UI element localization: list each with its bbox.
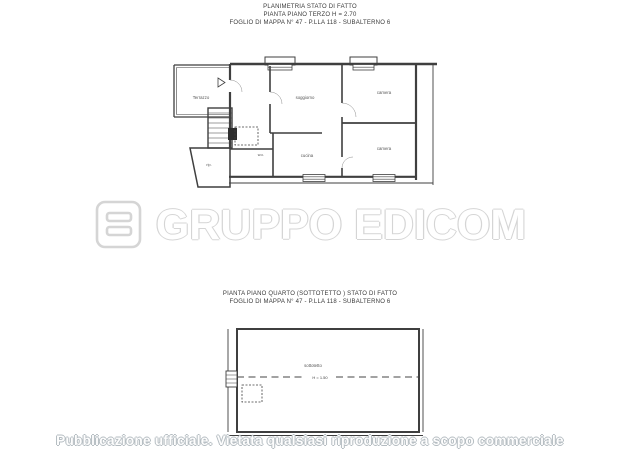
floor-plan-quarto: sottotetto H = 1.50 — [220, 318, 440, 443]
room-label-camera-bottom: camera — [377, 146, 392, 151]
plan-terzo-title-line3: FOGLIO DI MAPPA N° 47 - P.LLA 118 - SUBA… — [0, 20, 620, 28]
plan-terzo-title-block: PLANIMETRIA STATO DI FATTO PIANTA PIANO … — [0, 4, 620, 27]
plan-quarto-title-line1: PIANTA PIANO QUARTO (SOTTOTETTO ) STATO … — [0, 291, 620, 299]
plan-terzo-title-line1: PLANIMETRIA STATO DI FATTO — [0, 4, 620, 12]
room-label-soggiorno: soggiorno — [296, 95, 315, 100]
north-arrow-icon — [218, 78, 225, 87]
room-label-rip: rip. — [206, 163, 211, 167]
floor-plan-terzo: Terrazzo soggiorno camera camera cucina … — [165, 52, 445, 192]
room-label-sottotetto: sottotetto — [304, 363, 322, 368]
room-label-terrazzo: Terrazzo — [193, 95, 210, 100]
cadastral-document-page: PLANIMETRIA STATO DI FATTO PIANTA PIANO … — [0, 0, 620, 450]
height-line-label: H = 1.50 — [312, 375, 328, 380]
flue-pier — [228, 128, 237, 140]
plan-quarto-title-block: PIANTA PIANO QUARTO (SOTTOTETTO ) STATO … — [0, 291, 620, 307]
watermark: GRUPPO EDICOM — [0, 196, 620, 254]
room-label-camera-top: camera — [377, 90, 392, 95]
hatch-dashed-outline — [242, 385, 262, 402]
watermark-brand-text: GRUPPO EDICOM — [156, 201, 526, 250]
footer-notice: Pubblicazione ufficiale. Vietata qualsia… — [0, 433, 620, 448]
room-label-cucina: cucina — [301, 153, 314, 158]
plan-quarto-title-line2: FOGLIO DI MAPPA N° 47 - P.LLA 118 - SUBA… — [0, 299, 620, 307]
plan-terzo-title-line2: PIANTA PIANO TERZO H = 2.70 — [0, 12, 620, 20]
plan-quarto-walls — [226, 329, 423, 436]
door-arcs — [230, 80, 356, 168]
room-label-wc: w.c. — [258, 153, 265, 157]
plan-terzo-walls — [174, 57, 437, 187]
shaft-dashed-outline — [235, 127, 258, 145]
gruppo-edicom-logo-icon — [94, 199, 144, 251]
